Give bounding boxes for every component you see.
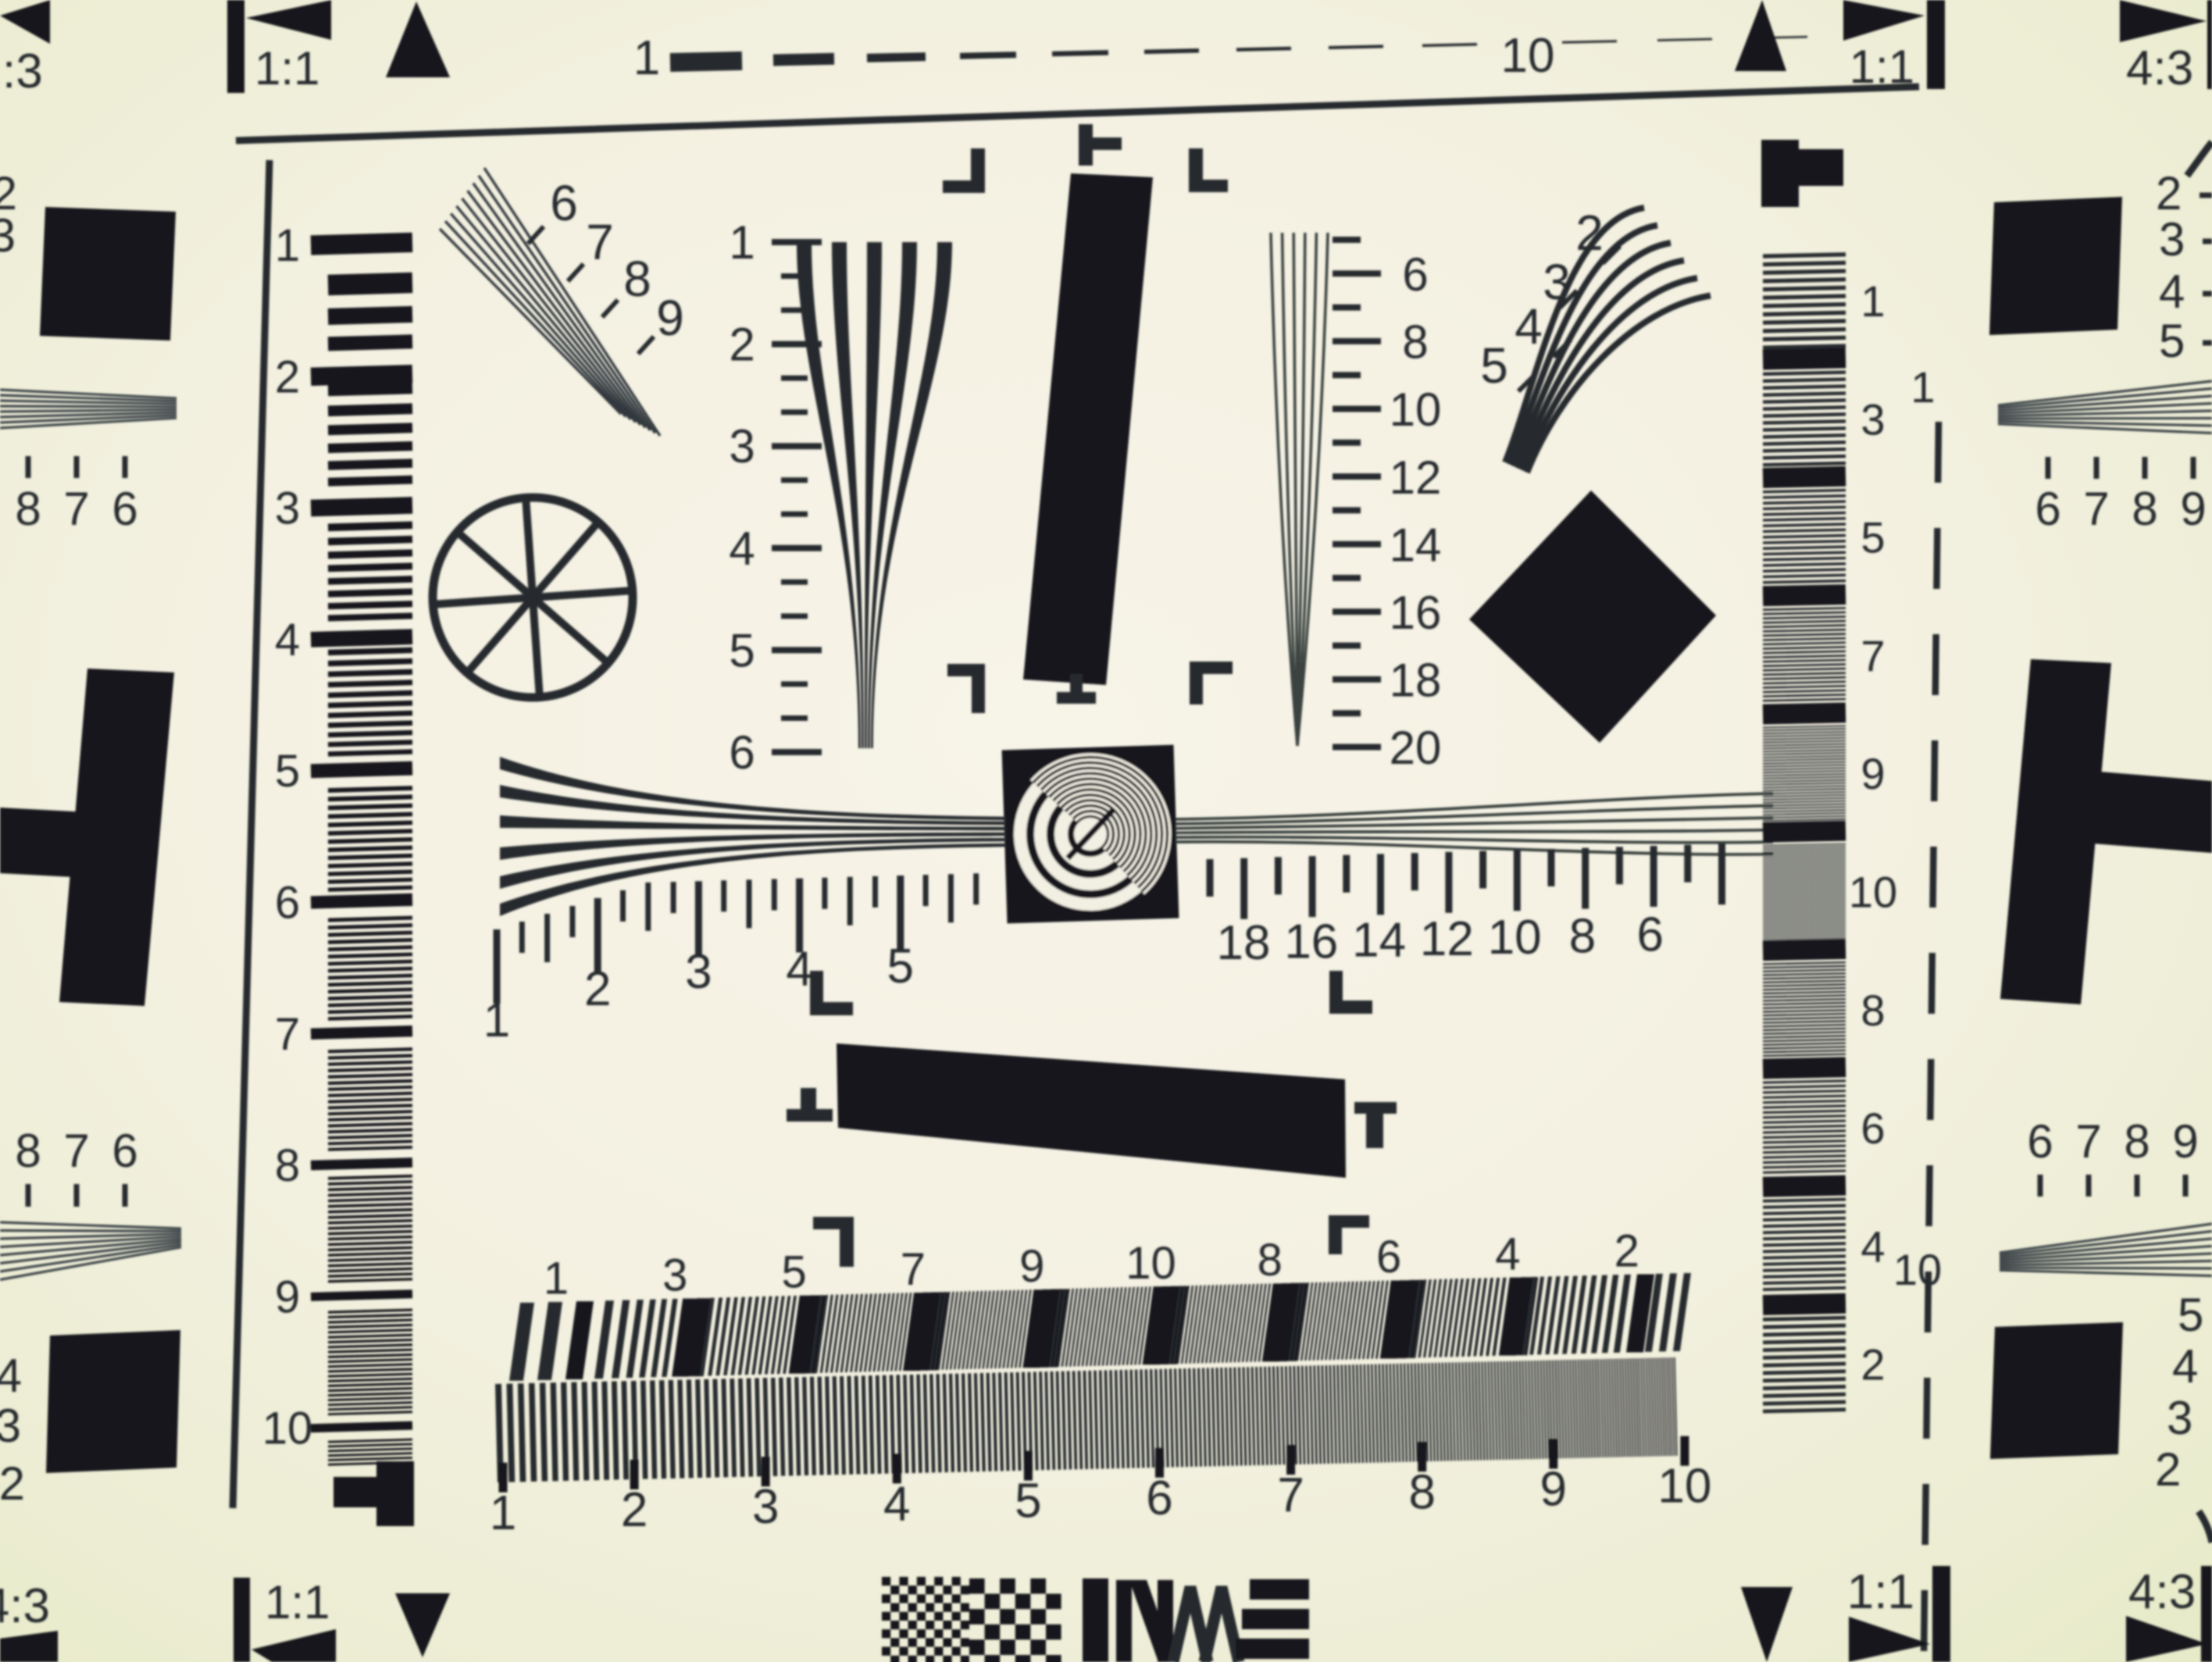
svg-text::3: :3 bbox=[2, 45, 43, 98]
svg-text:2: 2 bbox=[584, 962, 611, 1016]
svg-text:16: 16 bbox=[1284, 915, 1338, 968]
svg-text:3: 3 bbox=[275, 483, 300, 534]
svg-text:9: 9 bbox=[1540, 1463, 1567, 1517]
svg-text:10: 10 bbox=[1488, 911, 1542, 965]
svg-text:9: 9 bbox=[275, 1271, 300, 1322]
svg-text:2: 2 bbox=[2156, 167, 2182, 219]
svg-text:1: 1 bbox=[1861, 276, 1885, 326]
svg-text:1: 1 bbox=[544, 1253, 569, 1304]
svg-text:5: 5 bbox=[2178, 1289, 2203, 1341]
svg-text:7: 7 bbox=[63, 1125, 89, 1177]
svg-text:1:1: 1:1 bbox=[1847, 1565, 1914, 1619]
svg-text:6: 6 bbox=[275, 878, 300, 929]
svg-text:3: 3 bbox=[0, 209, 16, 262]
svg-text:2: 2 bbox=[1861, 1340, 1885, 1389]
svg-text:7: 7 bbox=[1861, 631, 1885, 680]
svg-text:1: 1 bbox=[1911, 362, 1935, 412]
svg-text:6: 6 bbox=[1402, 248, 1428, 301]
svg-text:6: 6 bbox=[1637, 908, 1664, 962]
svg-text:1: 1 bbox=[729, 216, 755, 269]
svg-text:10: 10 bbox=[262, 1403, 313, 1454]
svg-text:12: 12 bbox=[1420, 912, 1474, 966]
svg-text:5: 5 bbox=[275, 746, 300, 797]
svg-text:7: 7 bbox=[1277, 1468, 1304, 1522]
svg-text:2: 2 bbox=[1575, 205, 1604, 261]
svg-text:2: 2 bbox=[1614, 1226, 1639, 1277]
svg-text:3: 3 bbox=[2167, 1392, 2192, 1444]
svg-text:4: 4 bbox=[786, 943, 812, 997]
svg-text:14: 14 bbox=[1390, 519, 1442, 571]
svg-text:6: 6 bbox=[1861, 1104, 1885, 1153]
svg-text:16: 16 bbox=[1390, 587, 1442, 639]
svg-text:18: 18 bbox=[1217, 916, 1271, 970]
svg-text:1: 1 bbox=[275, 220, 300, 271]
svg-text:8: 8 bbox=[1569, 909, 1596, 963]
svg-text:8: 8 bbox=[2132, 483, 2157, 535]
svg-text:4: 4 bbox=[1495, 1229, 1520, 1279]
svg-text:4:3: 4:3 bbox=[2128, 1565, 2196, 1619]
svg-text:8: 8 bbox=[1258, 1235, 1283, 1286]
svg-text:5: 5 bbox=[887, 940, 914, 993]
svg-text:6: 6 bbox=[2035, 483, 2060, 535]
svg-text:7: 7 bbox=[586, 214, 614, 270]
svg-text:5: 5 bbox=[729, 624, 755, 676]
svg-text:4: 4 bbox=[2159, 266, 2185, 318]
svg-text:8: 8 bbox=[1408, 1465, 1435, 1519]
svg-text:3: 3 bbox=[685, 945, 712, 999]
svg-text:1: 1 bbox=[633, 31, 660, 85]
svg-text:10: 10 bbox=[1501, 29, 1555, 83]
svg-text:9: 9 bbox=[1861, 749, 1885, 798]
svg-text:4: 4 bbox=[2172, 1340, 2198, 1393]
svg-text:3: 3 bbox=[729, 420, 755, 473]
svg-text:2: 2 bbox=[275, 351, 300, 402]
svg-text:18: 18 bbox=[1390, 654, 1442, 707]
svg-text:10: 10 bbox=[1849, 868, 1897, 917]
svg-text:3: 3 bbox=[0, 1400, 21, 1452]
svg-text:4:3: 4:3 bbox=[2126, 41, 2193, 95]
svg-text:2: 2 bbox=[621, 1483, 648, 1537]
svg-text:1:1: 1:1 bbox=[1850, 41, 1914, 93]
svg-text:3: 3 bbox=[752, 1480, 779, 1534]
svg-text:14: 14 bbox=[1352, 914, 1406, 968]
svg-text:9: 9 bbox=[1019, 1241, 1044, 1292]
svg-text:4: 4 bbox=[729, 522, 755, 575]
svg-text:20: 20 bbox=[1390, 722, 1442, 774]
svg-text:10: 10 bbox=[1390, 383, 1442, 436]
svg-text:10: 10 bbox=[1893, 1245, 1942, 1294]
svg-text:6: 6 bbox=[729, 726, 755, 779]
svg-text:8: 8 bbox=[1402, 316, 1428, 369]
svg-text:6: 6 bbox=[112, 1125, 137, 1177]
svg-text:2: 2 bbox=[729, 319, 755, 371]
svg-text:4: 4 bbox=[883, 1477, 910, 1531]
svg-text:8: 8 bbox=[2124, 1115, 2150, 1168]
svg-text:4: 4 bbox=[1515, 298, 1543, 355]
svg-text:6: 6 bbox=[550, 175, 578, 231]
svg-text:4:3: 4:3 bbox=[0, 1579, 50, 1633]
svg-text:2: 2 bbox=[0, 1457, 25, 1510]
svg-text:1: 1 bbox=[483, 993, 510, 1047]
svg-text:9: 9 bbox=[2180, 483, 2206, 535]
svg-text:6: 6 bbox=[1376, 1232, 1401, 1282]
svg-text:12: 12 bbox=[1390, 451, 1442, 504]
svg-text:9: 9 bbox=[2172, 1115, 2198, 1168]
svg-text:8: 8 bbox=[15, 483, 41, 535]
svg-text:7: 7 bbox=[901, 1244, 926, 1295]
svg-text:5: 5 bbox=[1480, 337, 1508, 394]
svg-text:7: 7 bbox=[275, 1009, 300, 1060]
svg-text:8: 8 bbox=[275, 1140, 300, 1191]
svg-text:2: 2 bbox=[2155, 1443, 2181, 1496]
svg-text:10: 10 bbox=[1126, 1238, 1176, 1289]
svg-text:3: 3 bbox=[2159, 213, 2185, 266]
svg-text:8: 8 bbox=[623, 251, 651, 307]
svg-text:8: 8 bbox=[15, 1125, 41, 1177]
svg-text:1: 1 bbox=[490, 1486, 516, 1540]
svg-text:3: 3 bbox=[662, 1250, 687, 1301]
svg-text:6: 6 bbox=[2027, 1115, 2053, 1168]
svg-text:6: 6 bbox=[112, 483, 137, 535]
svg-text:7: 7 bbox=[63, 483, 89, 535]
svg-text:10: 10 bbox=[1657, 1460, 1711, 1514]
svg-text:5: 5 bbox=[781, 1247, 806, 1298]
svg-text:1:1: 1:1 bbox=[265, 1576, 330, 1628]
svg-text:8: 8 bbox=[1861, 986, 1885, 1035]
svg-text:7: 7 bbox=[2075, 1115, 2101, 1168]
svg-text:5: 5 bbox=[1861, 513, 1885, 562]
svg-text:7: 7 bbox=[2083, 483, 2109, 535]
svg-text:5: 5 bbox=[2159, 315, 2185, 367]
svg-text:4: 4 bbox=[275, 615, 300, 665]
svg-text:4: 4 bbox=[0, 1350, 22, 1402]
svg-text:4: 4 bbox=[1861, 1222, 1885, 1271]
svg-text:1:1: 1:1 bbox=[255, 42, 319, 95]
svg-text:9: 9 bbox=[656, 290, 684, 346]
svg-text:6: 6 bbox=[1146, 1471, 1172, 1525]
svg-text:5: 5 bbox=[1015, 1475, 1041, 1528]
svg-text:3: 3 bbox=[1861, 394, 1885, 444]
